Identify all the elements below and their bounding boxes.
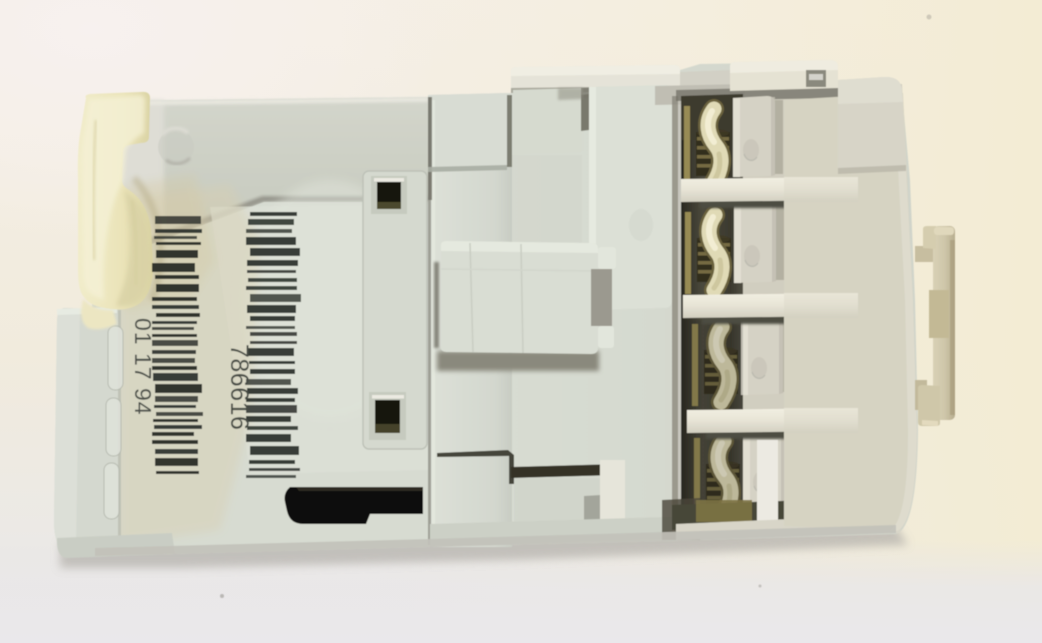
svg-text:01 17 94: 01 17 94 bbox=[130, 318, 156, 416]
svg-text:786616: 786616 bbox=[225, 344, 253, 430]
